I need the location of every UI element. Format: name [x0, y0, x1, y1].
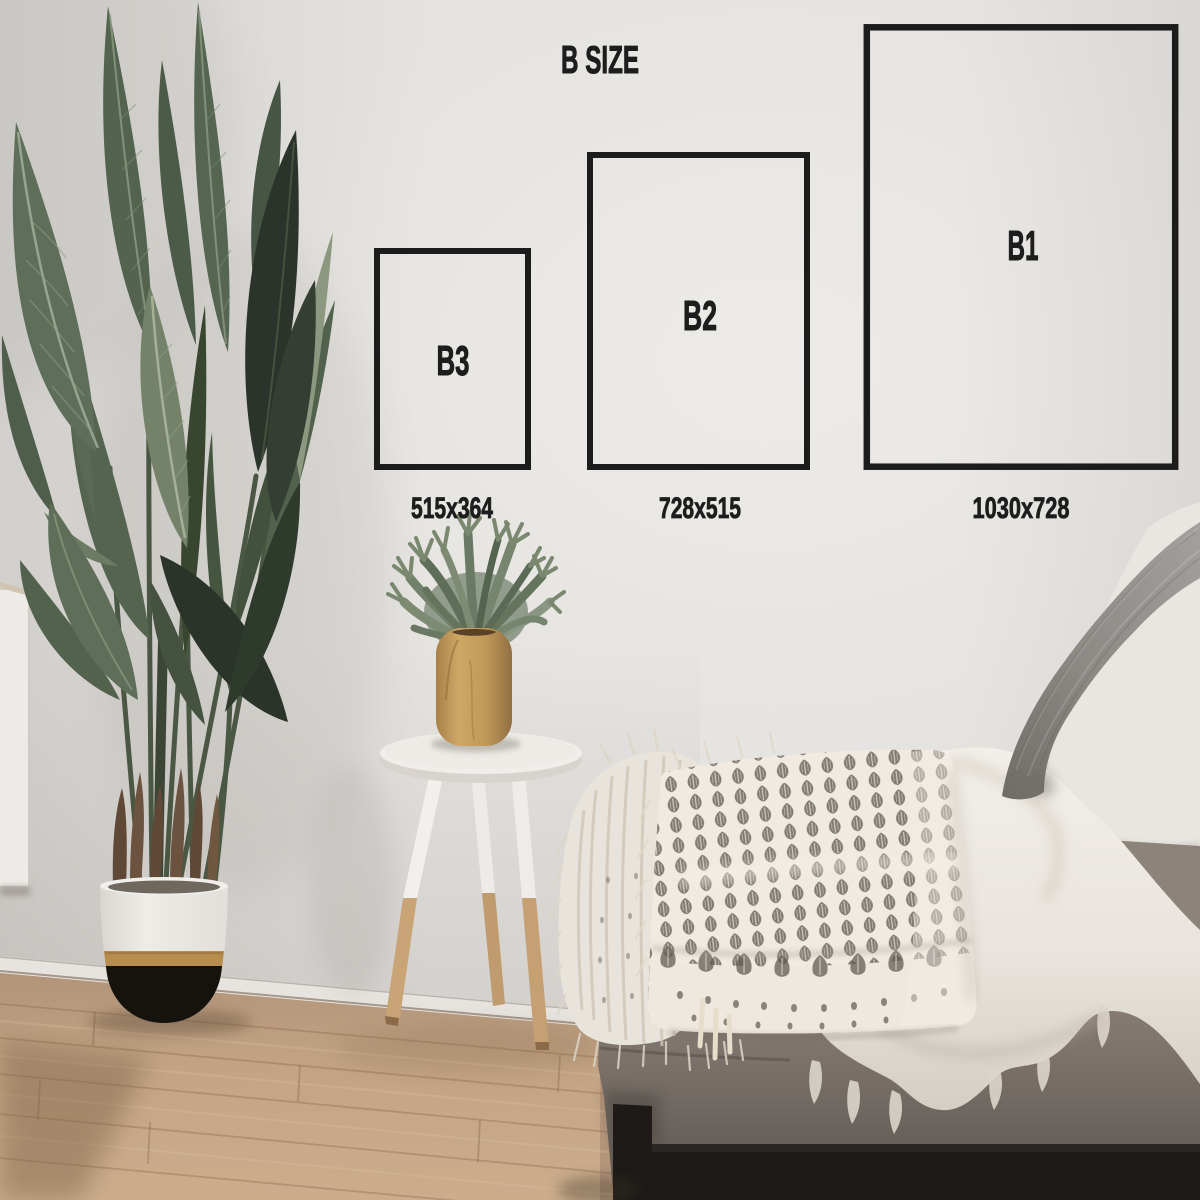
svg-text:1030x728: 1030x728: [973, 492, 1070, 525]
svg-text:728x515: 728x515: [659, 492, 741, 525]
svg-text:B SIZE: B SIZE: [561, 39, 639, 82]
svg-text:B3: B3: [437, 337, 470, 384]
svg-text:515x364: 515x364: [411, 492, 493, 525]
svg-text:B1: B1: [1008, 222, 1039, 269]
svg-text:B2: B2: [683, 292, 717, 339]
